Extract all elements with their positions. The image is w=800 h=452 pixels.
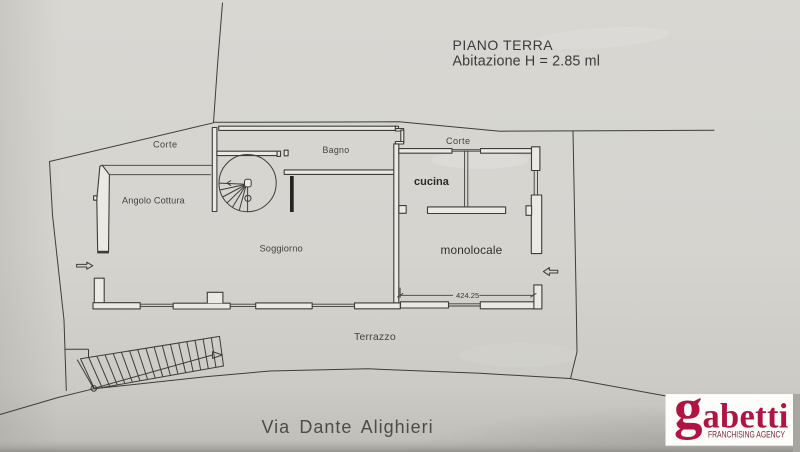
svg-text:424.25: 424.25 (456, 291, 479, 300)
svg-text:g: g (674, 378, 703, 441)
svg-text:cucina: cucina (414, 176, 450, 188)
svg-text:Via Dante Alighieri: Via Dante Alighieri (262, 417, 434, 437)
svg-text:Corte: Corte (446, 136, 470, 146)
svg-text:monolocale: monolocale (441, 243, 503, 257)
svg-text:Terrazzo: Terrazzo (354, 331, 396, 343)
svg-text:Bagno: Bagno (323, 145, 350, 155)
svg-text:FRANCHISING AGENCY: FRANCHISING AGENCY (708, 430, 785, 440)
svg-text:Corte: Corte (153, 140, 177, 150)
svg-text:Abitazione H = 2.85 ml: Abitazione H = 2.85 ml (453, 53, 601, 69)
svg-text:Angolo Cottura: Angolo Cottura (122, 195, 185, 205)
svg-text:PIANO TERRA: PIANO TERRA (453, 37, 554, 53)
svg-text:Soggiorno: Soggiorno (260, 244, 303, 254)
